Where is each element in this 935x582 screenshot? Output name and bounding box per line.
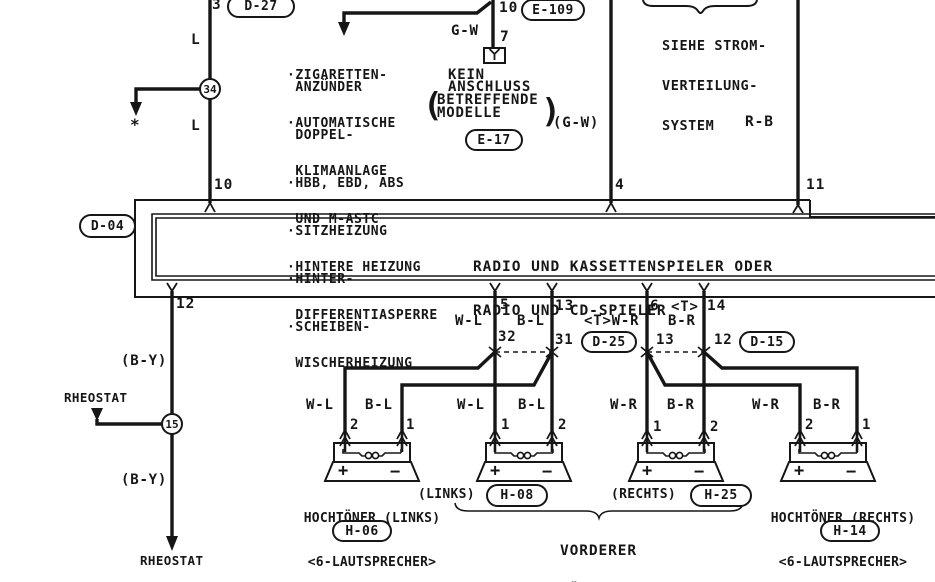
wire-wl-b1: W-L — [306, 398, 334, 412]
tw-right-pin-1: 1 — [862, 418, 871, 432]
fl-pin-2: 2 — [558, 418, 567, 432]
wire-rb — [793, 0, 803, 213]
wire-color-rb: R-B — [745, 115, 774, 130]
connector-h08: H-08 — [486, 484, 548, 507]
splice-12-label: 12 — [714, 333, 732, 347]
wire-color-l-upper: L — [191, 33, 201, 48]
wire-wr-b2: W-R — [752, 398, 780, 412]
wire-bl-top: B-L — [517, 314, 545, 328]
wire-t-top: <T> — [671, 300, 699, 314]
wire-br-b2: B-R — [813, 398, 841, 412]
fl-pin-1: 1 — [501, 418, 510, 432]
pin-e109-label: 10 — [499, 1, 518, 16]
tw-left-pin-2: 2 — [350, 418, 359, 432]
splice-31-label: 31 — [555, 333, 573, 347]
connector-d15: D-15 — [739, 331, 795, 353]
tw-left-pin-1: 1 — [406, 418, 415, 432]
pin-6-label: 6 — [650, 299, 660, 314]
tw-left-minus: − — [390, 464, 400, 481]
wire-twr-top: <T>W-R — [584, 314, 639, 328]
fl-plus: + — [490, 463, 500, 480]
consumer-list: ·ZIGARETTEN- ANZÜNDER ·AUTOMATISCHE DOPP… — [287, 46, 438, 382]
wire-color-l-lower: L — [191, 119, 201, 134]
wire-wl-top: W-L — [455, 314, 483, 328]
tw-left-plus: + — [338, 463, 348, 480]
connector-h06: H-06 — [332, 520, 392, 542]
wire-wr-b1: W-R — [610, 398, 638, 412]
connector-e17: E-17 — [465, 129, 523, 151]
wire-br-top: B-R — [668, 314, 696, 328]
wire-color-gw-paren: (G-W) — [553, 116, 599, 130]
junction-34-number: 34 — [198, 84, 222, 95]
power-box-remnant — [643, 0, 757, 13]
radio-pin-11-label: 11 — [806, 178, 825, 193]
fl-minus: − — [542, 464, 552, 481]
connector-d25: D-25 — [581, 331, 637, 353]
fr-minus: − — [694, 464, 704, 481]
junction-15-number: 15 — [160, 419, 184, 430]
fr-plus: + — [642, 463, 652, 480]
pin-14-label: 14 — [707, 299, 726, 314]
wire-color-gw: G-W — [451, 24, 479, 38]
wire-by-upper: (B-Y) — [121, 354, 167, 368]
group-label: VORDERER TÜRLAUT- SPRECHER — [560, 519, 637, 582]
pin-13-label: 13 — [555, 299, 574, 314]
tw-right-plus: + — [794, 463, 804, 480]
wire-br-b1: B-R — [667, 398, 695, 412]
fl-caption: (LINKS) — [418, 488, 475, 501]
splice-13-label: 13 — [656, 333, 674, 347]
wire-by-lower: (B-Y) — [121, 473, 167, 487]
connector-d27: D-27 — [227, 0, 295, 18]
speaker-terminals — [340, 430, 862, 452]
rheostat-label-upper: RHEOSTAT — [64, 392, 127, 405]
pin-5-label: 5 — [500, 298, 510, 313]
connector-d04: D-04 — [79, 214, 136, 238]
fr-pin-1: 1 — [653, 420, 662, 434]
wire-bl-b2: B-L — [518, 398, 546, 412]
connector-e109: E-109 — [521, 0, 585, 21]
connector-h14: H-14 — [820, 520, 880, 542]
tw-right-minus: − — [846, 464, 856, 481]
pin-12-label: 12 — [176, 297, 195, 312]
rheostat-label-lower: RHEOSTAT — [140, 555, 203, 568]
fr-caption: (RECHTS) — [611, 488, 676, 501]
tw-right-pin-2: 2 — [805, 418, 814, 432]
fr-pin-2: 2 — [710, 420, 719, 434]
wire-l-branch — [130, 0, 215, 212]
modelle-label: MODELLE — [437, 106, 502, 120]
radio-pin-4-label: 4 — [615, 178, 625, 193]
wire-bl-b1: B-L — [365, 398, 393, 412]
footnote-asterisk: * — [130, 117, 140, 133]
pin-3-label: 3 — [212, 0, 222, 13]
splice-32-label: 32 — [498, 330, 516, 344]
terminal-7-label: 7 — [500, 30, 510, 45]
wire-wl-b2: W-L — [457, 398, 485, 412]
wiring-diagram: 3 D-27 L L 34 * 10 ·ZIGARETTEN- ANZÜNDER… — [0, 0, 935, 582]
radio-pin-10-label: 10 — [214, 178, 233, 193]
